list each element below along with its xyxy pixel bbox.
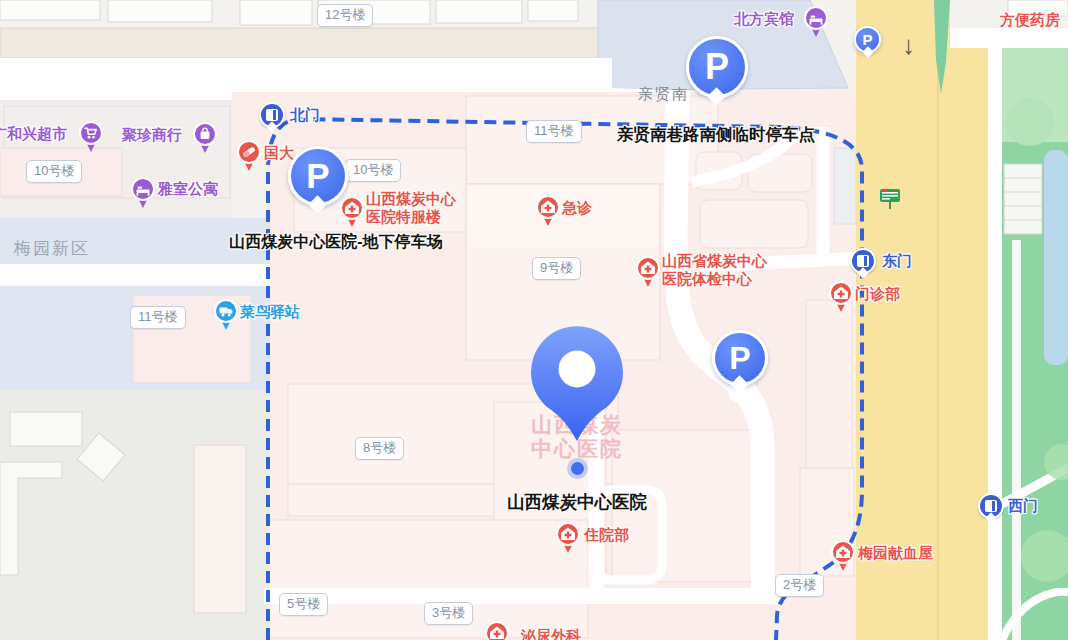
poi-special-building-line2[interactable]: 医院特服楼 [366, 208, 441, 226]
cart-icon[interactable] [78, 120, 104, 154]
building-pill-11-top: 11号楼 [526, 120, 582, 143]
hotel-bed-icon[interactable] [803, 5, 829, 39]
cainiao-truck-icon[interactable] [213, 298, 239, 332]
poi-pharmacy-right-label[interactable]: 方便药房 [1000, 11, 1060, 29]
hospital-icon[interactable] [555, 521, 581, 555]
hospital-icon[interactable] [635, 255, 661, 289]
poi-inpatient-label[interactable]: 住院部 [584, 526, 629, 544]
hospital-main-label[interactable]: 山西煤炭中心医院 [495, 490, 659, 514]
poi-checkup-center-line2[interactable]: 医院体检中心 [662, 270, 752, 288]
building-pill-3: 3号楼 [424, 602, 473, 625]
north-gate-label[interactable]: 北门 [290, 106, 320, 124]
poi-shop-label[interactable]: 聚珍商行 [122, 126, 182, 144]
poi-cainiao-label[interactable]: 菜鸟驿站 [240, 303, 300, 321]
west-gate-pin[interactable] [978, 493, 1004, 519]
bus-stop-icon[interactable] [877, 184, 903, 210]
poi-outpatient-label[interactable]: 门诊部 [855, 285, 900, 303]
building-pill-12: 12号楼 [317, 4, 373, 27]
parking-pin-underground[interactable]: P [288, 146, 348, 206]
parking-p-letter: P [306, 156, 329, 196]
poi-urology-label[interactable]: 泌尿外科 [521, 627, 581, 640]
parking-pin-campus[interactable]: P [712, 330, 768, 386]
building-pill-8: 8号楼 [355, 437, 404, 460]
east-gate-pin[interactable] [850, 248, 876, 274]
hospital-icon[interactable] [830, 539, 856, 573]
poi-hotel-label[interactable]: 北方宾馆 [734, 10, 794, 28]
east-gate-label[interactable]: 东门 [882, 252, 912, 270]
parking-pin-small[interactable]: P [854, 26, 881, 53]
one-way-arrow-icon: ↓ [902, 30, 915, 61]
underground-parking-label[interactable]: 山西煤炭中心医院-地下停车场 [196, 232, 476, 253]
north-gate-pin[interactable] [259, 102, 285, 128]
pin-inner-dot [559, 351, 596, 388]
road-name-label: 亲贤南 [638, 85, 689, 104]
hospital-icon[interactable] [535, 194, 561, 228]
building-pill-10-campus: 10号楼 [345, 159, 401, 182]
bag-icon[interactable] [192, 121, 218, 155]
location-anchor-dot [571, 462, 584, 475]
area-label: 梅园新区 [14, 237, 90, 260]
parking-p-letter: P [729, 340, 750, 377]
pharmacy-capsule-icon[interactable] [236, 139, 262, 173]
roadside-parking-label[interactable]: 亲贤南巷路南侧临时停车点 [602, 124, 830, 146]
parking-pin-roadside[interactable]: P [686, 36, 748, 98]
building-pill-11-left: 11号楼 [130, 306, 186, 329]
selected-location-pin[interactable] [517, 313, 637, 445]
poi-blood-station-label[interactable]: 梅园献血屋 [858, 544, 933, 562]
building-pill-9: 9号楼 [532, 257, 581, 280]
poi-supermarket-label[interactable]: 广和兴超市 [0, 125, 67, 143]
poi-pharmacy-left-label[interactable]: 国大 [264, 144, 294, 162]
poi-apartment-label[interactable]: 雅室公寓 [158, 180, 218, 198]
building-pill-10-left: 10号楼 [26, 160, 82, 183]
building-pill-2: 2号楼 [775, 574, 824, 597]
poi-emergency-label[interactable]: 急诊 [562, 199, 592, 217]
hospital-icon[interactable] [339, 195, 365, 229]
poi-special-building-line1[interactable]: 山西煤炭中心 [366, 190, 456, 208]
parking-p-letter: P [862, 31, 872, 48]
hospital-icon[interactable] [484, 620, 510, 640]
building-pill-5: 5号楼 [279, 593, 328, 616]
bed-icon[interactable] [130, 176, 156, 210]
map-canvas[interactable]: 山西煤炭 中心医院 12号楼 11号楼 10号楼 10号楼 9号楼 11号楼 8… [0, 0, 1068, 640]
gate-icon [857, 255, 869, 267]
parking-p-letter: P [705, 46, 729, 88]
gate-icon [985, 500, 997, 512]
west-gate-label[interactable]: 西门 [1008, 497, 1038, 515]
hospital-icon[interactable] [828, 280, 854, 314]
poi-checkup-center-line1[interactable]: 山西省煤炭中心 [662, 252, 767, 270]
gate-icon [266, 109, 278, 121]
